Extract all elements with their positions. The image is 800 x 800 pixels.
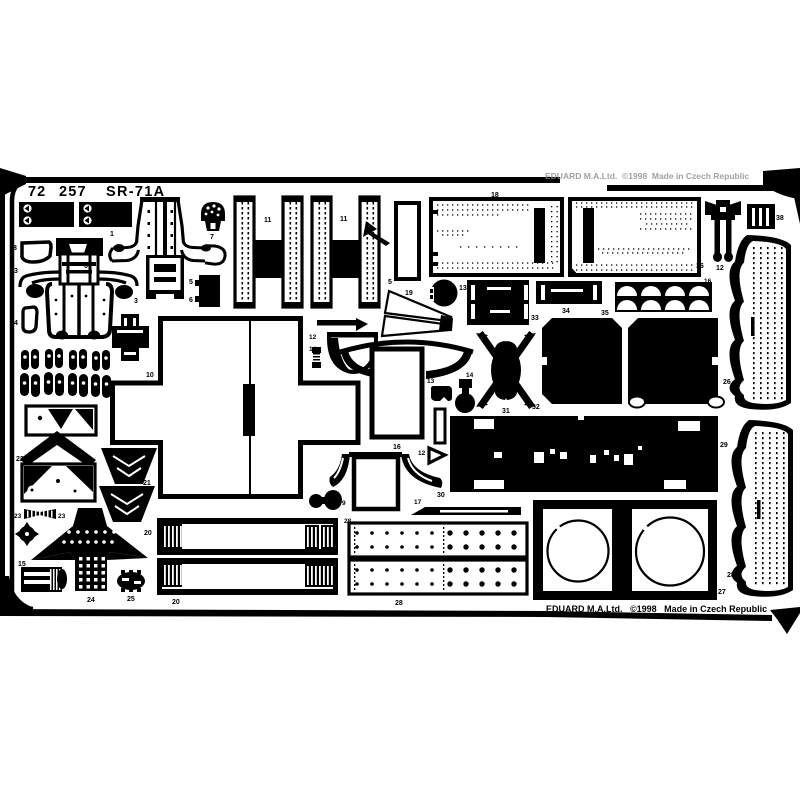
svg-text:18: 18 [491, 192, 499, 199]
svg-text:12: 12 [309, 334, 317, 341]
svg-text:28: 28 [727, 572, 735, 579]
svg-text:13: 13 [427, 378, 435, 385]
svg-text:257: 257 [59, 184, 87, 200]
svg-text:6: 6 [84, 263, 88, 270]
svg-text:19: 19 [405, 290, 413, 297]
svg-text:15: 15 [18, 561, 26, 568]
svg-text:32: 32 [532, 404, 540, 411]
svg-text:7: 7 [210, 234, 214, 241]
svg-text:20: 20 [144, 530, 152, 537]
svg-text:27: 27 [718, 589, 726, 596]
svg-text:1: 1 [110, 231, 114, 238]
svg-text:34: 34 [562, 308, 570, 315]
svg-text:36: 36 [696, 263, 704, 270]
svg-text:38: 38 [776, 215, 784, 222]
svg-text:23: 23 [58, 513, 66, 520]
svg-text:35: 35 [601, 310, 609, 317]
svg-text:11: 11 [264, 217, 272, 224]
svg-text:29: 29 [720, 442, 728, 449]
svg-text:13: 13 [459, 285, 467, 292]
svg-text:3: 3 [14, 268, 18, 275]
svg-text:72: 72 [28, 184, 46, 200]
svg-text:26: 26 [723, 379, 731, 386]
svg-text:17: 17 [414, 499, 422, 506]
svg-text:28: 28 [395, 600, 403, 607]
svg-text:EDUARD M.A.Ltd. ©1998 Made i: EDUARD M.A.Ltd. ©1998 Made in Czech Repu… [545, 171, 749, 181]
svg-text:22: 22 [16, 456, 24, 463]
svg-text:23: 23 [14, 513, 22, 520]
svg-text:12: 12 [716, 265, 724, 272]
svg-text:10: 10 [146, 372, 154, 379]
svg-text:12: 12 [418, 450, 426, 457]
svg-text:28: 28 [344, 518, 352, 525]
svg-text:25: 25 [127, 596, 135, 603]
svg-text:33: 33 [531, 315, 539, 322]
svg-text:9: 9 [342, 500, 346, 507]
svg-text:21: 21 [143, 480, 151, 487]
svg-text:4: 4 [14, 320, 18, 327]
svg-text:20: 20 [172, 599, 180, 606]
svg-text:6: 6 [189, 297, 193, 304]
svg-text:5: 5 [189, 279, 193, 286]
svg-text:5: 5 [388, 279, 392, 286]
svg-text:16: 16 [704, 278, 712, 285]
svg-text:14: 14 [466, 372, 474, 379]
svg-text:16: 16 [393, 444, 401, 451]
svg-text:30: 30 [437, 492, 445, 499]
svg-text:31: 31 [502, 408, 510, 415]
svg-text:11: 11 [340, 216, 348, 223]
svg-text:3: 3 [134, 298, 138, 305]
svg-text:4: 4 [10, 532, 14, 539]
svg-text:8: 8 [13, 245, 17, 252]
svg-text:EDUARD M.A.Ltd. ©1998 Made: EDUARD M.A.Ltd. ©1998 Made in Czech Repu… [546, 604, 767, 614]
svg-text:24: 24 [87, 597, 95, 604]
